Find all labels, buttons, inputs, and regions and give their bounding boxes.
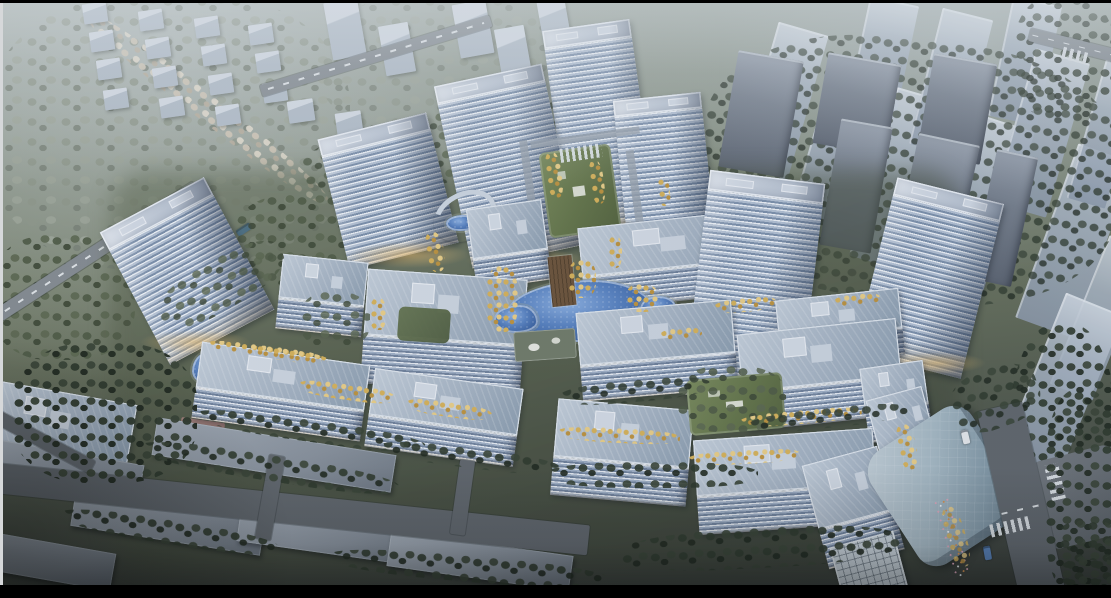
context-block — [287, 98, 316, 123]
hedge-row — [548, 462, 758, 488]
left-edge-strip — [0, 3, 3, 585]
context-block — [103, 87, 130, 110]
context-block — [96, 57, 123, 80]
forest-topright-gap — [1014, 0, 1111, 120]
context-block — [208, 72, 235, 95]
context-block — [248, 22, 275, 45]
context-block — [194, 15, 221, 38]
lane-marking — [1002, 503, 1045, 514]
context-block — [255, 50, 282, 73]
gingko-trees — [568, 260, 596, 298]
context-block — [138, 8, 165, 31]
trees-site-court — [300, 292, 370, 348]
gingko-trees — [486, 266, 518, 332]
apartment-slab-south-1 — [550, 398, 694, 505]
context-block — [201, 43, 228, 66]
context-block — [89, 29, 116, 52]
letterbox-bottom — [0, 585, 1111, 598]
letterbox-top — [0, 0, 1111, 3]
context-warehouse-roof — [0, 533, 116, 592]
zen-garden — [513, 328, 577, 362]
context-block — [152, 65, 179, 88]
trees-plaza-island — [1058, 520, 1111, 560]
inner-courtyard-lawn — [397, 306, 451, 344]
context-block — [159, 95, 186, 118]
gingko-trees — [370, 298, 386, 330]
trees-corner-southeast — [1060, 558, 1111, 588]
gingko-trees — [608, 236, 622, 268]
context-block — [82, 1, 109, 24]
car-blue — [983, 545, 992, 560]
context-block — [215, 103, 242, 126]
aerial-rendering — [0, 0, 1111, 598]
context-block — [145, 36, 172, 59]
gingko-trees — [626, 284, 658, 312]
